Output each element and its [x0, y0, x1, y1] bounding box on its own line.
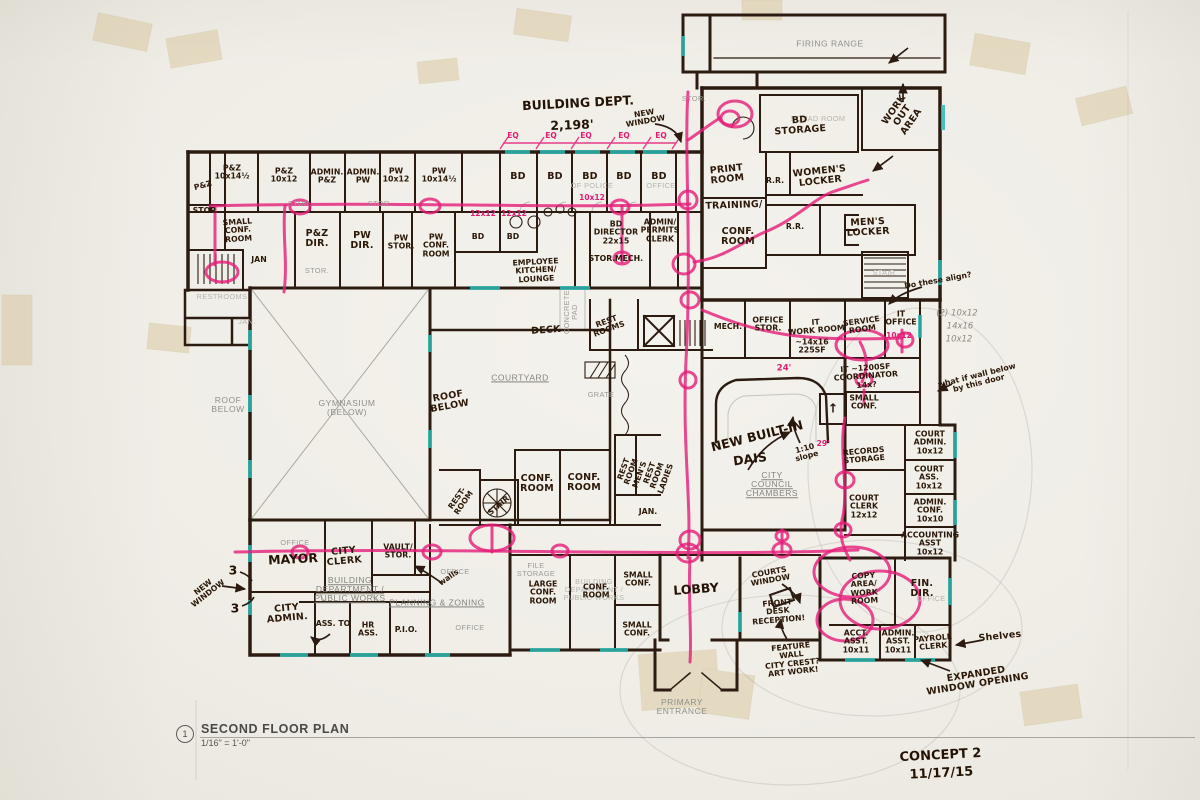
window-highlights	[250, 36, 955, 660]
floor-plan-drawing	[0, 0, 1200, 800]
gym-diagonals	[252, 290, 428, 518]
title-block-rule	[200, 737, 1195, 738]
scanned-floor-plan-sheet: FIRING RANGESQUAD ROOMBD STORAGEWORK OUT…	[0, 0, 1200, 800]
cad-underlay	[320, 202, 816, 602]
title-block: 1 SECOND FLOOR PLAN 1/16" = 1'-0"	[176, 722, 349, 748]
tape-strips	[2, 0, 1133, 726]
sheet-scale: 1/16" = 1'-0"	[201, 738, 349, 748]
stair-hatches	[198, 117, 906, 517]
pink-circulation	[206, 92, 920, 662]
concept-label: CONCEPT 2	[899, 746, 982, 765]
pink-dimension-line	[500, 137, 680, 149]
sheet-title: SECOND FLOOR PLAN	[201, 722, 349, 736]
detail-number-bubble: 1	[176, 725, 194, 743]
revision-note: CONCEPT 2 11/17/15	[899, 746, 982, 783]
